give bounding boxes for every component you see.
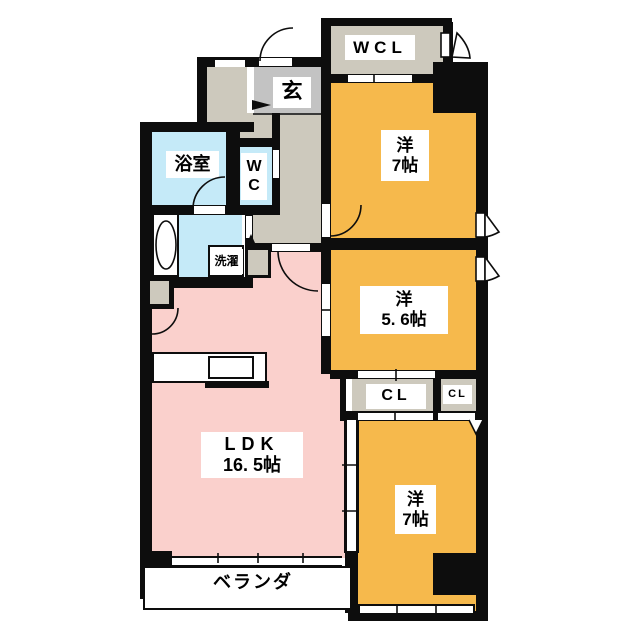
bedroom3-window (358, 604, 475, 615)
wall (476, 62, 488, 621)
wall (321, 18, 331, 82)
bedroom2-sliding-door (322, 284, 330, 336)
wall (327, 18, 452, 26)
vanity-counter (152, 213, 179, 277)
wcl-sliding-door (348, 75, 412, 82)
label-closet-small: CL (443, 385, 472, 404)
bathroom-door-leaf (194, 206, 225, 214)
washroom-door-opening (246, 216, 252, 238)
entrance-door-opening (259, 58, 292, 66)
closet-small-door-opening (438, 413, 475, 420)
toilet-door-opening (273, 150, 279, 178)
bedroom1-door-opening (322, 204, 330, 237)
label-ldk: LDK16. 5帖 (201, 432, 303, 478)
ldk-bedroom3-sliding-partition (347, 420, 356, 551)
kitchen-counter-front (205, 381, 269, 388)
wall (197, 57, 207, 130)
wcl-window-fan (452, 33, 470, 58)
wall (340, 370, 346, 418)
wall (233, 205, 280, 215)
label-closet-large: CL (366, 384, 426, 409)
closet-large-slider-bottom (358, 413, 433, 420)
label-laundry: 洗濯 (210, 249, 243, 274)
closet-large-slider-top (358, 371, 435, 378)
wall (140, 122, 152, 558)
floorplan: WCL 玄 浴室 WC 洗濯 洋7帖 洋5. 6帖 CL CL 洋7帖 LDK1… (0, 0, 640, 640)
room-ldk-fill (245, 252, 321, 558)
label-entrance: 玄 (273, 77, 311, 108)
entrance-step (247, 67, 254, 113)
hall-storage-box (245, 247, 271, 278)
label-toilet: WC (241, 153, 267, 200)
label-veranda: ベランダ (205, 569, 301, 595)
pipe-space-box (150, 281, 174, 309)
label-bathroom: 浴室 (166, 151, 219, 178)
shoe-closet-slider (215, 60, 245, 67)
label-wcl: WCL (345, 35, 415, 60)
room-shoe-closet-fill (207, 65, 247, 122)
pillar (433, 553, 477, 595)
wall (321, 238, 488, 250)
ldk-veranda-window (172, 556, 342, 567)
ldk-door-opening (272, 244, 310, 251)
label-bedroom3: 洋7帖 (395, 485, 436, 534)
label-bedroom1: 洋7帖 (381, 130, 429, 181)
kitchen-sink (208, 356, 254, 379)
label-bedroom2: 洋5. 6帖 (360, 286, 448, 334)
room-ldk-fill (152, 288, 245, 558)
